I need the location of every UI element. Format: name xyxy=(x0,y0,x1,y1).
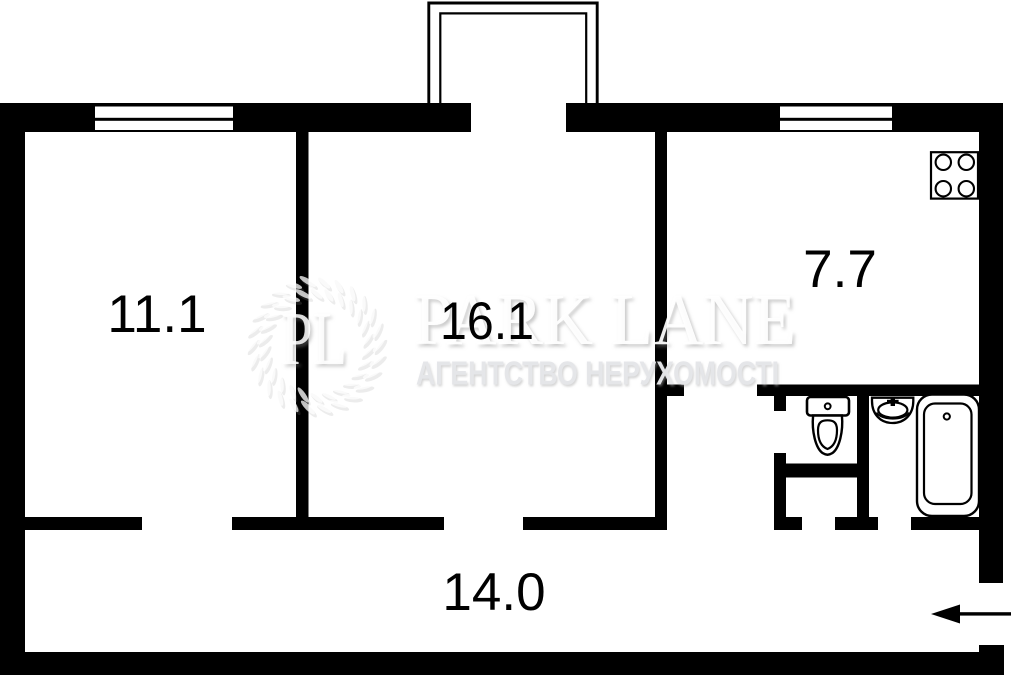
svg-text:7.7: 7.7 xyxy=(803,240,877,299)
svg-text:14.0: 14.0 xyxy=(442,563,545,622)
svg-text:PL: PL xyxy=(281,297,347,381)
svg-text:16.1: 16.1 xyxy=(440,292,534,351)
svg-text:11.1: 11.1 xyxy=(107,285,206,344)
svg-text:АГЕНТСТВО НЕРУХОМОСТІ: АГЕНТСТВО НЕРУХОМОСТІ xyxy=(416,355,779,392)
